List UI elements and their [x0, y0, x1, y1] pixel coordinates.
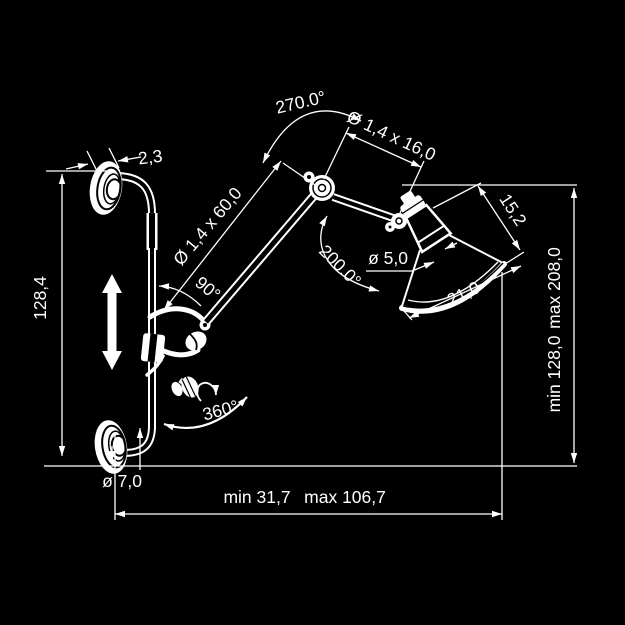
label-rod-length: 128,4 [30, 276, 50, 320]
label-reach-max: max 106,7 [304, 487, 386, 507]
label-reach-min: min 31,7 [223, 487, 290, 507]
wall-lamp-diagram: 2,3 128,4 Ø 1,4 x 60,0 90° 270.0° Ø 1,4 … [0, 0, 625, 625]
label-height-max: max 208,0 [544, 247, 564, 329]
label-flange-diameter: ø 7,0 [102, 471, 142, 491]
label-socket-diameter: ø 5,0 [368, 248, 408, 268]
technical-drawing-canvas: 2,3 128,4 Ø 1,4 x 60,0 90° 270.0° Ø 1,4 … [0, 0, 625, 625]
label-mount-thickness: 2,3 [137, 146, 164, 169]
label-height-min: min 128,0 [544, 335, 564, 412]
